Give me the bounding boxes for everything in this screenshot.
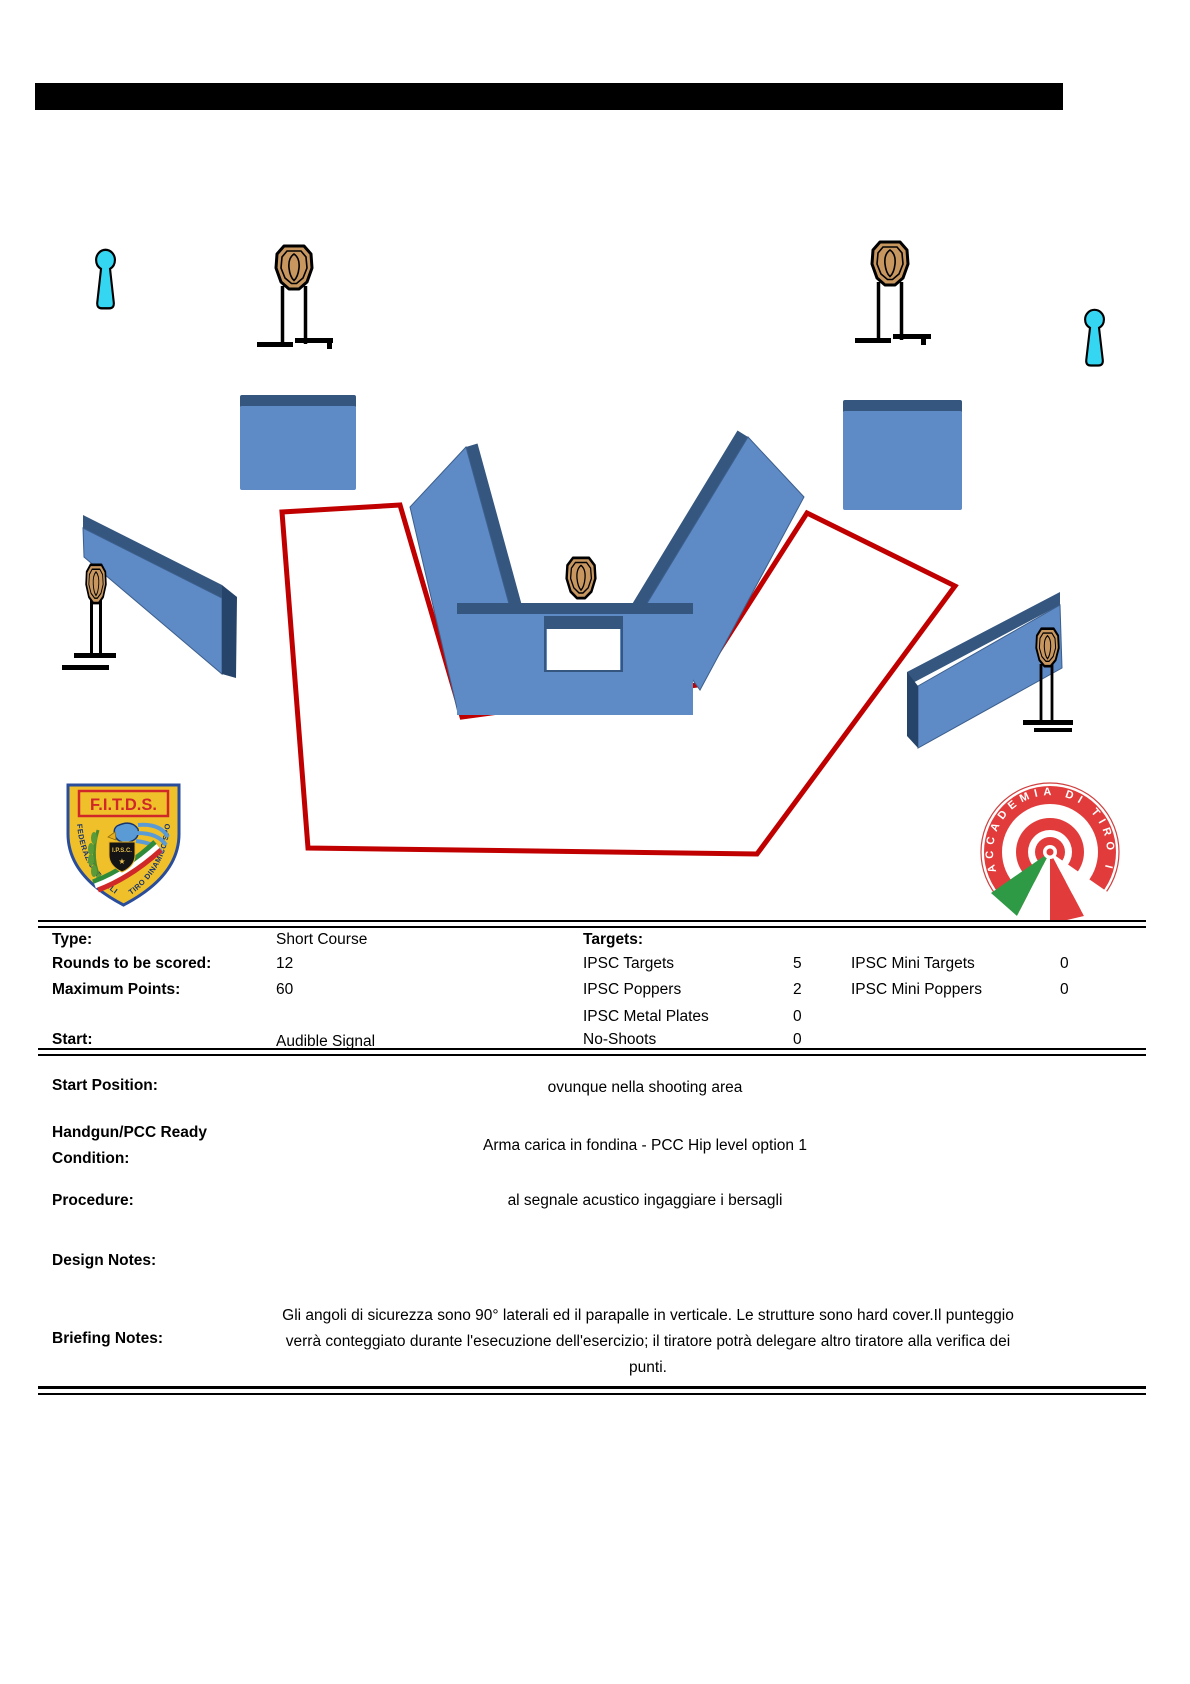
target-row-count: 5 [793, 955, 802, 973]
max-points-label: Maximum Points: [52, 981, 180, 999]
ready-condition-label-line1: Handgun/PCC Ready [52, 1124, 207, 1142]
type-value: Short Course [276, 931, 367, 949]
fitds-title: F.I.T.D.S. [90, 796, 157, 814]
target-stand-2 [62, 600, 116, 670]
ipsc-target-3 [567, 558, 596, 598]
target-row-label: IPSC Targets [583, 955, 674, 973]
popper-row-count: 2 [793, 981, 802, 999]
target-stand-1 [257, 286, 333, 349]
metal-plates-row-count: 0 [793, 1008, 802, 1026]
fitds-badge-star: ★ [118, 857, 125, 866]
max-points-value: 60 [276, 981, 293, 999]
no-shoots-row-count: 0 [793, 1031, 802, 1049]
ipsc-target-5 [872, 242, 908, 285]
stage-briefing-page: F.I.T.D.S. FEDERAZIONE ITALIANA TIRO DIN… [0, 0, 1190, 1684]
table-bottom-rule [38, 1386, 1146, 1395]
ipsc-target-1 [276, 246, 312, 289]
start-label: Start: [52, 1031, 92, 1049]
rounds-value: 12 [276, 955, 293, 973]
accademia-logo: ACCADEMIA DI TIRO ITALIANA [981, 783, 1119, 920]
ipsc-target-2 [86, 565, 106, 603]
table-mid-rule [38, 1048, 1146, 1056]
popper-row-label: IPSC Poppers [583, 981, 681, 999]
mini-target-row-label: IPSC Mini Targets [851, 955, 975, 973]
target-stand-5 [855, 282, 931, 345]
wall-top-left [240, 395, 356, 490]
briefing-notes-value: Gli angoli di sicurezza sono 90° lateral… [272, 1303, 1024, 1381]
briefing-notes-label: Briefing Notes: [52, 1330, 163, 1348]
fitds-badge-text: I.P.S.C. [112, 848, 132, 854]
procedure-label: Procedure: [52, 1192, 134, 1210]
popper-2 [1085, 310, 1104, 366]
mini-target-row-count: 0 [1060, 955, 1069, 973]
wall-top-right [843, 400, 962, 510]
type-label: Type: [52, 931, 92, 949]
fitds-logo: F.I.T.D.S. FEDERAZIONE ITALIANA TIRO DIN… [62, 775, 179, 905]
wall-center-front [457, 603, 693, 715]
rounds-label: Rounds to be scored: [52, 955, 211, 973]
mini-popper-row-count: 0 [1060, 981, 1069, 999]
table-top-rule [38, 920, 1146, 928]
mini-popper-row-label: IPSC Mini Poppers [851, 981, 982, 999]
stage-diagram: F.I.T.D.S. FEDERAZIONE ITALIANA TIRO DIN… [0, 0, 1190, 920]
ready-condition-value: Arma carica in fondina - PCC Hip level o… [270, 1137, 1020, 1155]
start-position-value: ovunque nella shooting area [270, 1079, 1020, 1097]
no-shoots-row-label: No-Shoots [583, 1031, 656, 1049]
metal-plates-row-label: IPSC Metal Plates [583, 1008, 709, 1026]
ipsc-target-4 [1036, 629, 1059, 666]
start-position-label: Start Position: [52, 1077, 158, 1095]
popper-1 [96, 250, 115, 308]
center-wall-port [545, 617, 622, 671]
procedure-value: al segnale acustico ingaggiare i bersagl… [270, 1192, 1020, 1210]
targets-header: Targets: [583, 931, 643, 949]
design-notes-label: Design Notes: [52, 1252, 156, 1270]
ready-condition-label-line2: Condition: [52, 1150, 129, 1168]
